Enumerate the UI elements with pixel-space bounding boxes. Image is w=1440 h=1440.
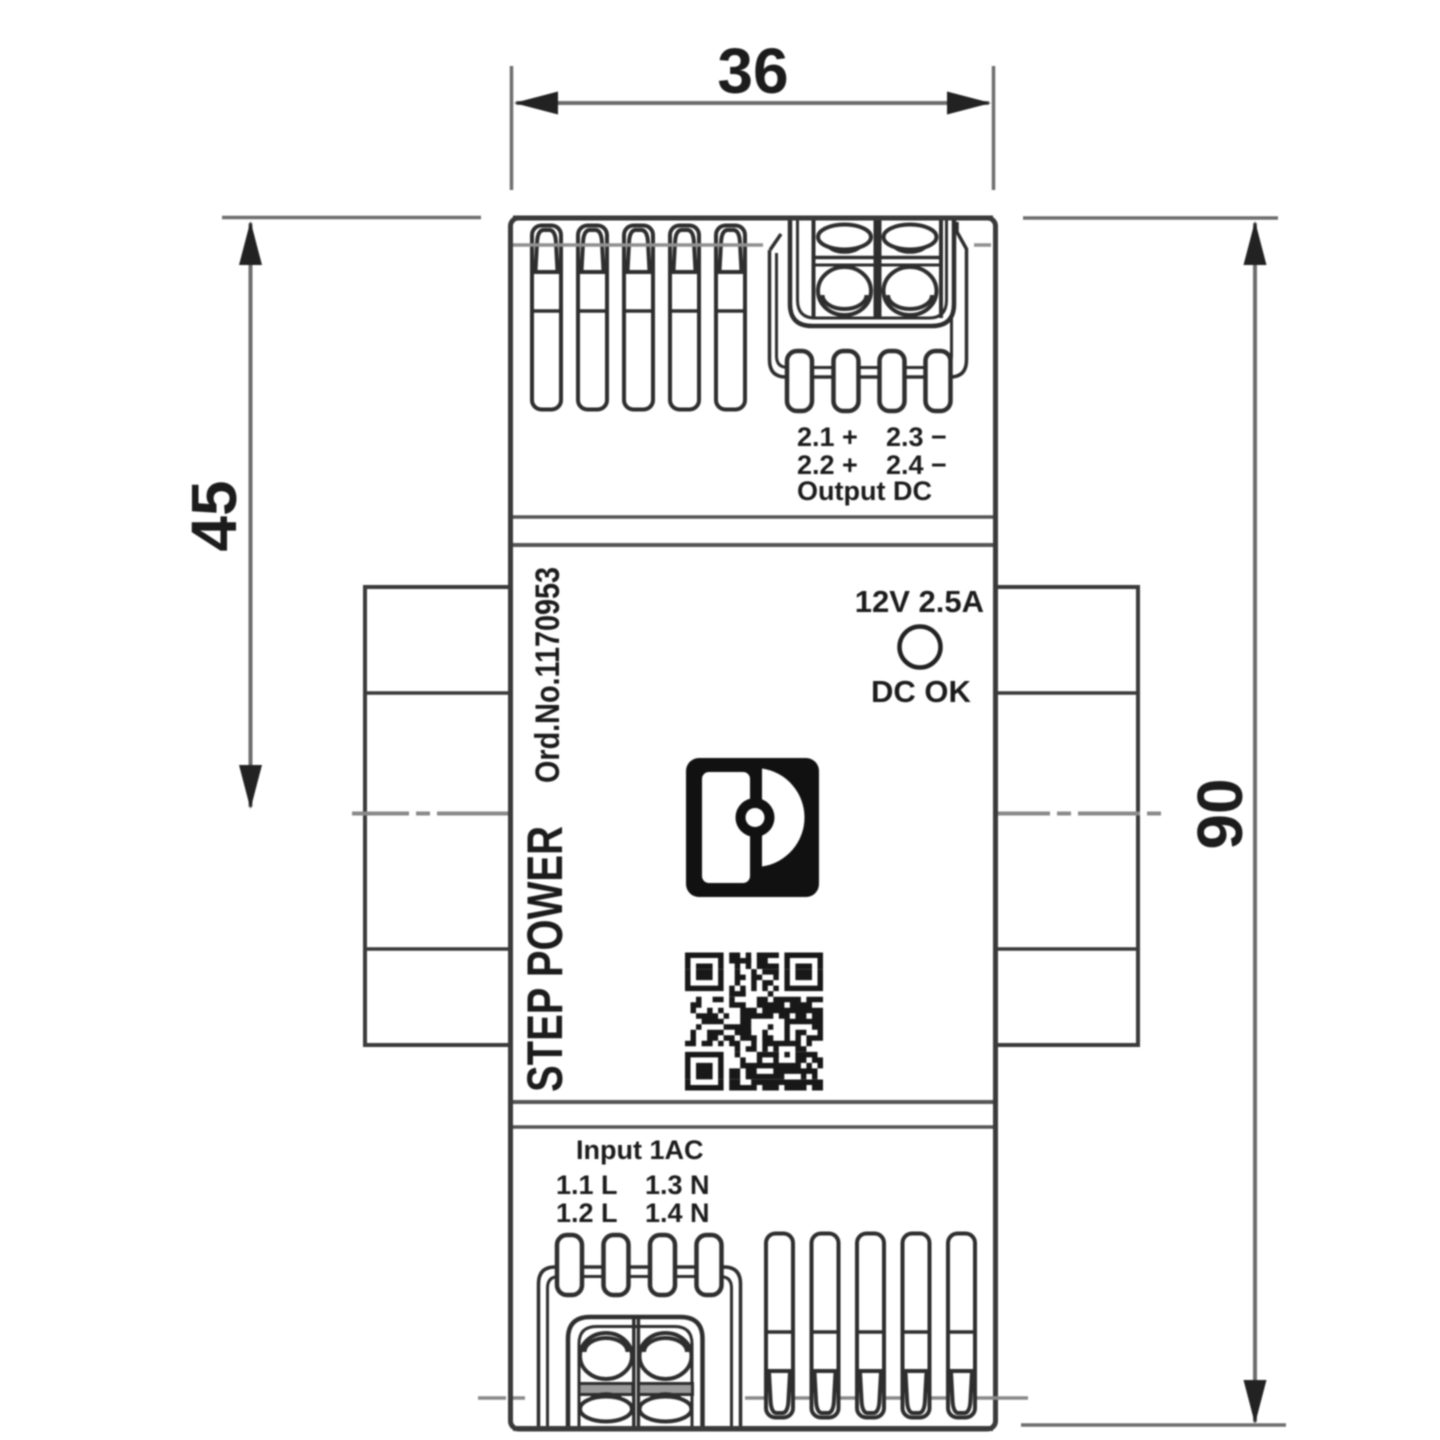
svg-text:90: 90 — [1184, 778, 1256, 849]
svg-text:2.3 −: 2.3 − — [886, 422, 947, 452]
svg-text:1.4 N: 1.4 N — [645, 1198, 710, 1228]
svg-text:Output DC: Output DC — [797, 476, 932, 506]
svg-text:DC OK: DC OK — [871, 674, 972, 709]
svg-text:STEP POWER: STEP POWER — [517, 826, 573, 1092]
svg-text:Ord.No.1170953: Ord.No.1170953 — [529, 567, 567, 783]
svg-text:1.3 N: 1.3 N — [645, 1170, 710, 1200]
svg-text:36: 36 — [717, 35, 788, 107]
svg-text:12V 2.5A: 12V 2.5A — [855, 584, 984, 619]
svg-text:2.1 +: 2.1 + — [797, 422, 858, 452]
svg-text:1.1 L: 1.1 L — [556, 1170, 618, 1200]
svg-text:Input 1AC: Input 1AC — [576, 1135, 704, 1165]
svg-text:45: 45 — [178, 480, 250, 551]
svg-text:1.2 L: 1.2 L — [556, 1198, 618, 1228]
